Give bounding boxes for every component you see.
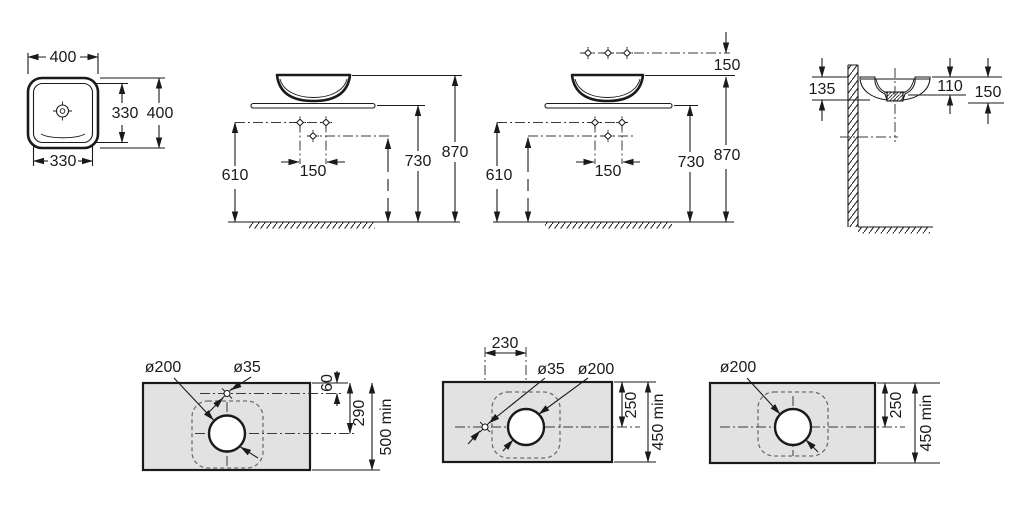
countertop-slab	[251, 104, 375, 109]
dim-label: 400	[147, 105, 174, 122]
dim-label: 110	[937, 78, 963, 95]
dim-label: 610	[222, 167, 249, 184]
dim-label: 730	[678, 154, 705, 171]
dia-label: ø200	[720, 359, 757, 376]
dim-label: 250	[623, 392, 640, 419]
floor-hatching	[545, 223, 672, 229]
dim-label: 450 min	[918, 395, 935, 452]
dim-plan-width-top: 400	[28, 49, 98, 74]
dim-counter-height: 730	[674, 106, 704, 223]
dim-label: 330	[112, 105, 139, 122]
dim-min-depth: 450 min	[877, 383, 940, 463]
dim-label: 150	[300, 163, 327, 180]
cutout-template-c: ø200 250 450 min	[710, 359, 940, 463]
countertop-slab	[545, 104, 672, 109]
dim-tap-spacing: 150	[576, 162, 640, 180]
dim-rim-height: 870	[352, 76, 468, 223]
dim-label: 400	[50, 49, 77, 66]
dia-label: ø200	[578, 361, 615, 378]
dia-label: ø35	[537, 361, 565, 378]
dim-label: 450 min	[650, 394, 667, 451]
plan-view: 400 330 400 330	[28, 49, 173, 170]
dim-label: 610	[486, 167, 513, 184]
dim-rim-to-base-wall: 135	[809, 58, 870, 121]
cutout-template-a: ø200 ø35 60 290 500 min	[143, 359, 395, 470]
dim-label: 500 min	[378, 399, 395, 456]
tap-hole-marker	[480, 422, 490, 432]
dim-label: 230	[492, 335, 519, 352]
dim-counter-height: 730	[377, 106, 431, 223]
wall-section-view: 135 110 150	[809, 58, 1004, 234]
dim-label: 150	[714, 57, 741, 74]
dim-label: 730	[405, 153, 432, 170]
dim-tap-spacing: 150	[281, 162, 345, 180]
technical-drawing-sheet: 400 330 400 330	[0, 0, 1024, 509]
dim-label: 60	[319, 374, 336, 392]
dim-plan-bowl-height: 330	[95, 84, 138, 143]
front-elevation-a: 150 610 730 870	[222, 75, 469, 229]
floor-hatching	[858, 228, 930, 234]
dim-drain-height: 610	[486, 123, 513, 223]
dia-label: ø35	[233, 359, 261, 376]
drain-cutout-circle	[775, 409, 811, 445]
tap-hole-marker	[222, 389, 232, 399]
front-elevation-b: 150 150 610 730 8	[486, 32, 741, 229]
dim-tap-edge-offset: 60	[312, 371, 348, 406]
drain-cutout-circle	[209, 416, 245, 452]
dim-label: 330	[50, 153, 77, 170]
dim-drain-height: 610	[222, 123, 249, 223]
dim-label: 150	[975, 84, 1002, 101]
dim-label: 870	[442, 144, 469, 161]
dim-rim-to-base-front: 150	[968, 58, 1004, 124]
floor-hatching	[249, 223, 375, 229]
dim-label: 290	[351, 400, 368, 427]
cutout-template-b: 230 ø35 ø200 250 450 min	[443, 335, 667, 462]
dim-label: 135	[809, 81, 836, 98]
dim-label: 150	[595, 163, 622, 180]
dim-wall-tap-offset: 150	[645, 32, 740, 76]
drain-cutout-circle	[508, 409, 544, 445]
dim-label: 250	[888, 392, 905, 419]
dim-label: 870	[714, 147, 741, 164]
dim-tap-center-offset: 230	[485, 335, 526, 353]
wall-hatching	[848, 65, 858, 227]
dia-label: ø200	[145, 359, 182, 376]
washbasin-dimension-drawing: 400 330 400 330	[0, 0, 1024, 509]
dim-center-edge-offset: 290	[350, 383, 368, 434]
dim-rim-height: 870	[714, 77, 741, 222]
